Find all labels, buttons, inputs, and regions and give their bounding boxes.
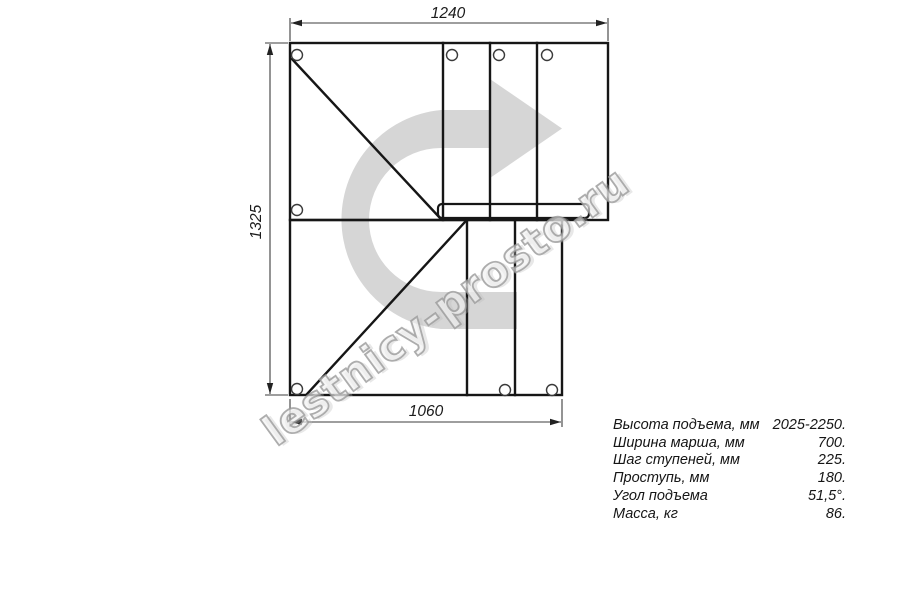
dimension-lines (265, 18, 608, 427)
dim-top-width-label: 1240 (431, 5, 466, 22)
hole-icon (500, 385, 511, 396)
spec-label: Высота подъема, мм (613, 417, 760, 435)
spec-label: Шаг ступеней, мм (613, 452, 740, 470)
spec-value: 225. (810, 452, 846, 470)
spec-label: Проступь, мм (613, 470, 709, 488)
spec-label: Угол подъема (613, 488, 708, 506)
spec-row-step-pitch: Шаг ступеней, мм 225. (613, 452, 846, 470)
spec-table: Высота подъема, мм 2025-2250. Ширина мар… (613, 417, 846, 523)
hole-icon (292, 384, 303, 395)
spec-row-tread: Проступь, мм 180. (613, 470, 846, 488)
hole-icon (494, 50, 505, 61)
hole-icon (292, 50, 303, 61)
hole-icon (542, 50, 553, 61)
spec-value: 51,5°. (800, 488, 846, 506)
spec-row-mass: Масса, кг 86. (613, 506, 846, 524)
dim-bottom-width-label: 1060 (409, 403, 444, 420)
spec-value: 86. (818, 506, 846, 524)
hole-icon (447, 50, 458, 61)
staircase-plan-page: 1240 1325 1060 lestnicy-prosto.ru Высота… (0, 0, 900, 600)
landing-step-bar (438, 204, 589, 218)
spec-row-height: Высота подъема, мм 2025-2250. (613, 417, 846, 435)
hole-icon (292, 205, 303, 216)
spec-row-march-width: Ширина марша, мм 700. (613, 435, 846, 453)
hole-icon (547, 385, 558, 396)
spec-label: Ширина марша, мм (613, 435, 745, 453)
spec-value: 2025-2250. (765, 417, 846, 435)
spec-label: Масса, кг (613, 506, 678, 524)
dim-left-height-label: 1325 (248, 204, 265, 239)
spec-value: 180. (810, 470, 846, 488)
spec-row-angle: Угол подъема 51,5°. (613, 488, 846, 506)
spec-value: 700. (810, 435, 846, 453)
